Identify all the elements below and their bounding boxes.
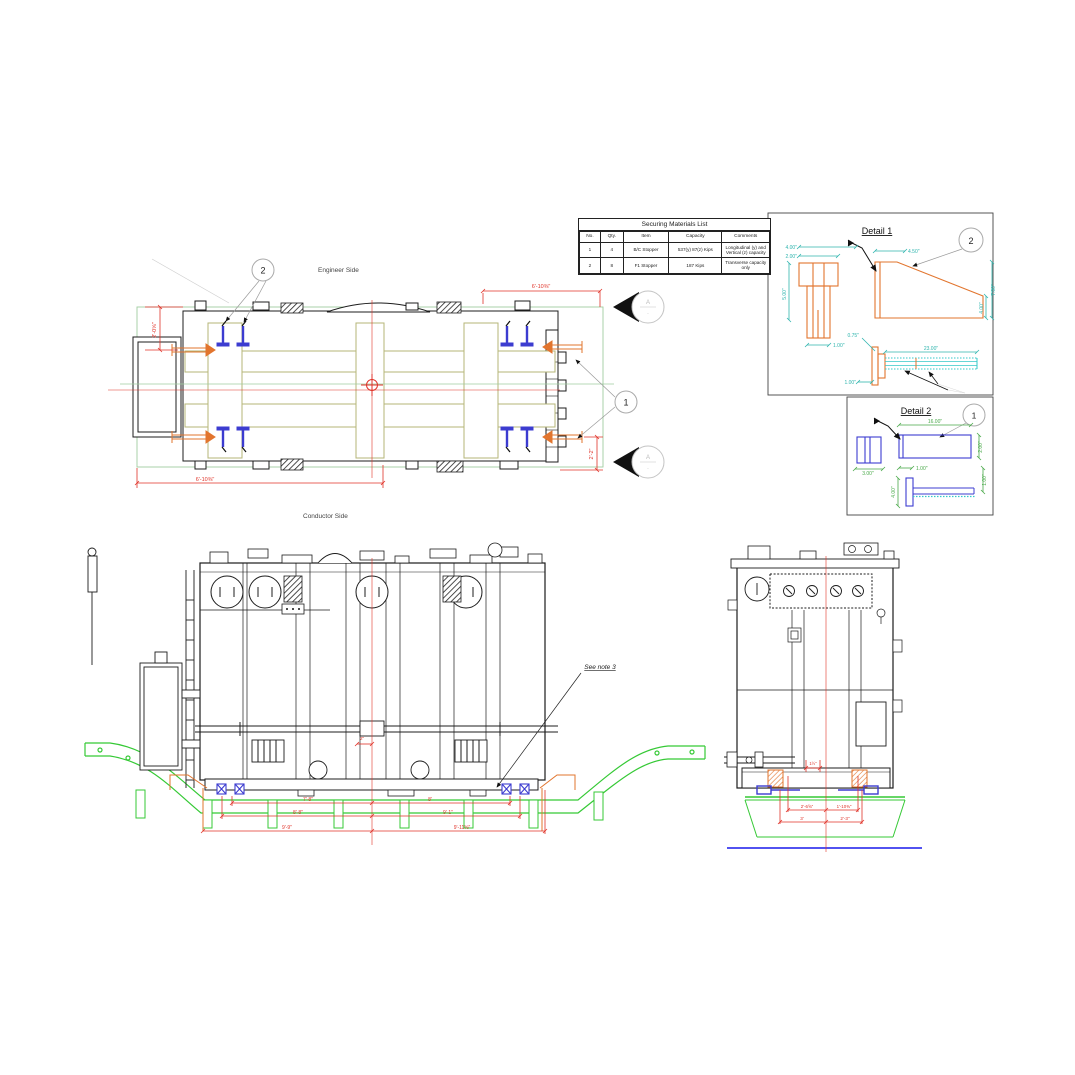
- detail-1-weld-arrow: [848, 240, 876, 271]
- see-note-text: See note 3: [584, 664, 616, 671]
- callout-2-number: 2: [260, 266, 265, 276]
- side-dim-2-6: 2'-6⅝": [801, 804, 814, 809]
- front-dim-small: 2": [360, 736, 365, 741]
- front-dim-7-8: 7'-8": [303, 797, 313, 803]
- d1-dim-cap-inner: 2.00": [785, 254, 797, 260]
- engineer-side-label: Engineer Side: [318, 267, 359, 274]
- section-letter: A: [646, 300, 650, 306]
- detail-2-callout: 1: [972, 411, 977, 421]
- front-dim-9-9: 9'-9": [282, 825, 292, 831]
- cell-capacity: 187 Kips: [669, 258, 722, 274]
- section-marker-bottom: A -: [613, 446, 664, 478]
- side-dim-1-10: 1'-10⅜": [837, 804, 852, 809]
- detail-2-weld-arrow: [874, 418, 900, 439]
- side-dim-3: 3': [800, 816, 804, 821]
- securing-materials-table: Securing Materials List No. Qty. Item Ca…: [578, 218, 771, 275]
- detail-2-end-view: [857, 437, 881, 463]
- drawing-svg: 2 Engineer Side Conductor Side 1 A - A -…: [0, 0, 1075, 1075]
- detail-1-callout-leader: [913, 249, 962, 266]
- plan-transformer-outline: [133, 301, 566, 469]
- front-dim-9-1: 9'-1": [443, 810, 453, 816]
- section-marker-top: A -: [613, 291, 664, 323]
- table-header-row: No. Qty. Item Capacity Comments: [580, 232, 770, 243]
- d1-dim-cap-top: 4.00": [785, 245, 797, 251]
- detail-2: Detail 2 1 3.00" 16.00" 2.00" 1.00" 4.00…: [847, 397, 993, 515]
- front-elevation: See note 3 7'-8" 8' 8'-8" 9'-1" 9'-9" 9'…: [85, 543, 705, 845]
- d1-dim-height: 5.00": [782, 288, 788, 300]
- side-dim-2-3: 2'-3": [840, 816, 850, 821]
- plan-dim-top: 6'-10⅜": [532, 284, 551, 290]
- cell-no: 1: [580, 242, 601, 258]
- table-row: 1 4 B/C Stopper 537(y) 87(z) Kips Longit…: [580, 242, 770, 258]
- conductor-side-label: Conductor Side: [303, 513, 348, 520]
- cell-qty: 4: [600, 242, 623, 258]
- detail-2-bolt: [906, 478, 976, 506]
- detail-2-title: Detail 2: [901, 406, 932, 416]
- cell-item: B/C Stopper: [623, 242, 669, 258]
- drawing-sheet: 2 Engineer Side Conductor Side 1 A - A -…: [0, 0, 1075, 1075]
- detail-1-title: Detail 1: [862, 226, 893, 236]
- deck-stake-pockets: [136, 790, 603, 828]
- front-dim-8: 8': [428, 797, 432, 803]
- table-row: 2 8 F1 Stopper 187 Kips Transverse capac…: [580, 258, 770, 274]
- d1-dim-stem: 1.00": [833, 343, 845, 349]
- table-title: Securing Materials List: [579, 219, 770, 231]
- d1-dim-wedge-top: 4.50": [908, 249, 920, 255]
- front-dim-9-11: 9'-11⅝": [454, 825, 471, 831]
- side-elevation: 2'-6⅝" 1'-10⅜" 3' 2'-3" 1½": [724, 543, 922, 852]
- front-left-accessories: [88, 548, 200, 788]
- faint-note-leader: [152, 259, 229, 303]
- detail-1: Detail 1 2: [768, 213, 997, 395]
- side-dim-small: 1½": [809, 761, 817, 766]
- col-comments: Comments: [722, 232, 770, 243]
- table-grid: No. Qty. Item Capacity Comments 1 4 B/C …: [579, 231, 770, 274]
- d1-dim-wedge-right-inner: 4.00": [979, 302, 985, 314]
- cell-comments: Longitudinal (y) and Vertical (z) capaci…: [722, 242, 770, 258]
- cell-item: F1 Stopper: [623, 258, 669, 274]
- plan-view: 2 Engineer Side Conductor Side 1 A - A -…: [108, 259, 664, 520]
- plan-dim-right: 2'-2": [589, 448, 595, 459]
- d2-dim-height: 2.00": [978, 441, 984, 453]
- d2-dim-end: 3.00": [862, 471, 874, 477]
- col-no: No.: [580, 232, 601, 243]
- plan-dim-bottom: 6'-10⅜": [196, 477, 215, 483]
- cell-comments: Transverse capacity only: [722, 258, 770, 274]
- plan-callout-1: 1: [576, 360, 637, 438]
- d1-dim-wedge-right-outer: 7.00": [991, 284, 997, 296]
- col-capacity: Capacity: [669, 232, 722, 243]
- d2-dim-bolt-right: 1.00": [982, 474, 988, 486]
- detail-1-bolt: [872, 347, 977, 393]
- d2-dim-bolt-plate: 4.00": [891, 486, 897, 498]
- col-qty: Qty.: [600, 232, 623, 243]
- d1-dim-bolt-length: 23.00": [924, 346, 939, 352]
- section-letter-2: A: [646, 455, 650, 461]
- railcar-deck-side: [745, 797, 905, 837]
- cell-no: 2: [580, 258, 601, 274]
- detail-1-wedge: [875, 262, 983, 318]
- cell-capacity: 537(y) 87(z) Kips: [669, 242, 722, 258]
- callout-1-number: 1: [623, 398, 628, 408]
- d1-dim-bolt-head: 0.75": [847, 333, 859, 339]
- col-item: Item: [623, 232, 669, 243]
- plan-dim-left: 2'-0⅝": [152, 322, 158, 338]
- d1-dim-bolt-flange: 1.00": [844, 380, 856, 386]
- detail-2-plate: [899, 435, 971, 458]
- cell-qty: 8: [600, 258, 623, 274]
- detail-1-callout: 2: [968, 236, 973, 246]
- detail-1-end-view: [799, 263, 838, 338]
- d2-dim-length: 16.00": [928, 419, 943, 425]
- d2-dim-left: 1.00": [916, 466, 928, 472]
- detail-1-dim-texts: 4.00" 2.00" 5.00" 1.00" 4.50" 7.00" 4.00…: [782, 245, 997, 386]
- front-dim-8-8: 8'-8": [293, 810, 303, 816]
